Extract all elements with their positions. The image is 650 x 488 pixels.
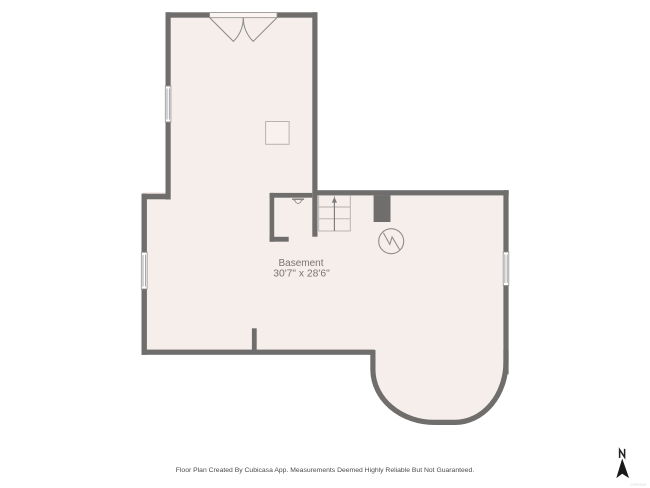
- svg-text:Basement: Basement: [278, 258, 323, 269]
- svg-text:30'7" x 28'6": 30'7" x 28'6": [273, 268, 330, 279]
- svg-text:Floor Plan Created By Cubicasa: Floor Plan Created By Cubicasa App. Meas…: [176, 467, 475, 474]
- svg-text:cubicasa: cubicasa: [630, 482, 647, 487]
